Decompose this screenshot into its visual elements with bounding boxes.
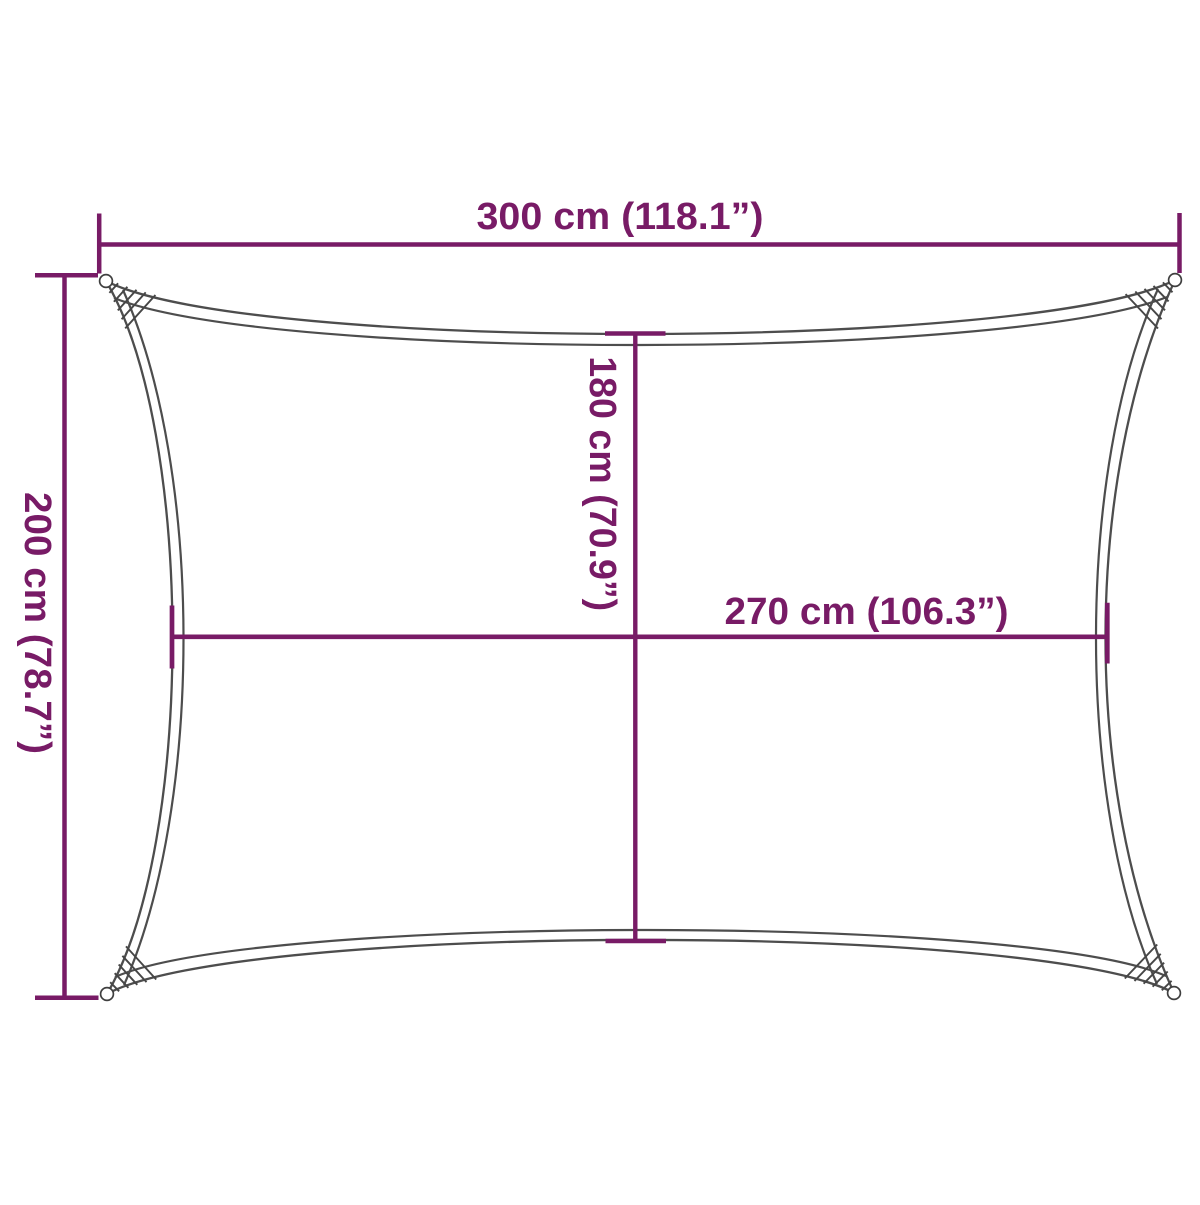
svg-text:180 cm (70.9”): 180 cm (70.9”) xyxy=(581,356,623,611)
svg-text:270 cm (106.3”): 270 cm (106.3”) xyxy=(725,591,1009,633)
svg-text:300 cm (118.1”): 300 cm (118.1”) xyxy=(477,196,764,238)
svg-text:200 cm (78.7”): 200 cm (78.7”) xyxy=(16,492,58,754)
